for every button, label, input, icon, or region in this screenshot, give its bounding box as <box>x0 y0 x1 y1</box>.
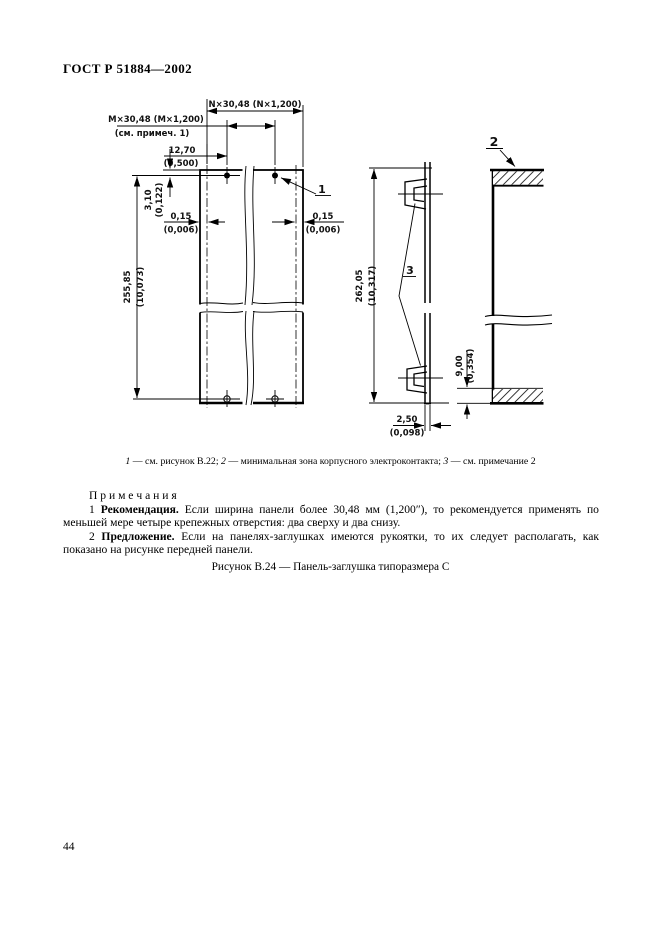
front-view-panel-outline <box>198 165 305 408</box>
dim-310-inch: (0,122) <box>155 183 165 218</box>
page-number: 44 <box>63 841 75 853</box>
dimension-9-00: 9,00 (0,354) <box>455 349 476 419</box>
dim-900-value: 9,00 <box>455 355 465 376</box>
callout-2: 2 <box>486 134 515 167</box>
dimension-0-15-right: 0,15 (0,006) <box>272 212 344 236</box>
callout-3-label: 3 <box>406 264 414 277</box>
side-view <box>398 162 443 404</box>
contact-zone-top <box>493 171 543 184</box>
figure-key: 1 — см. рисунок В.22; 2 — минимальная зо… <box>0 456 661 467</box>
dimension-255-85: 255,85 (10,073) <box>123 177 146 399</box>
technical-drawing: N×30,48 (N×1,200) M×30,48 (M×1,200) (см.… <box>0 0 661 470</box>
dim-015r-value: 0,15 <box>313 212 334 222</box>
dim-26205-value: 262,05 <box>355 270 365 303</box>
dim-26205-inch: (10,317) <box>368 266 378 307</box>
dim-m-note: (см. примеч. 1) <box>115 129 190 139</box>
dim-25585-value: 255,85 <box>123 271 133 304</box>
note-2-term: Предложение. <box>101 530 174 543</box>
dimension-0-15-left: 0,15 (0,006) <box>164 212 225 236</box>
dimension-n-module: N×30,48 (N×1,200) <box>207 100 303 111</box>
dim-900-inch: (0,354) <box>466 349 476 384</box>
note-2: 2 Предложение. Если на панелях-заглушках… <box>63 530 599 557</box>
callout-2-label: 2 <box>490 134 499 149</box>
callout-1: 1 <box>281 178 331 196</box>
contact-zone-bottom <box>493 389 543 403</box>
dim-m-label: M×30,48 (M×1,200) <box>108 115 204 125</box>
key-item-2-num: 2 <box>221 456 226 467</box>
dim-n-label: N×30,48 (N×1,200) <box>209 100 302 110</box>
dimension-262-05: 262,05 (10,317) <box>355 168 449 403</box>
note-1-num: 1 <box>89 503 95 516</box>
note-1-term: Рекомендация. <box>101 503 179 516</box>
note-2-num: 2 <box>89 530 95 543</box>
front-view-extension-lines <box>132 99 303 399</box>
dim-1270-value: 12,70 <box>169 146 196 156</box>
dimension-2-50: 2,50 (0,098) <box>390 405 451 439</box>
callout-1-label: 1 <box>318 183 326 196</box>
dim-015r-inch: (0,006) <box>306 226 341 236</box>
notes-section: П р и м е ч а н и я 1 Рекомендация. Если… <box>63 489 599 557</box>
dimension-m-module: M×30,48 (M×1,200) (см. примеч. 1) <box>108 115 275 139</box>
dim-015l-value: 0,15 <box>171 212 192 222</box>
figure-title: Рисунок В.24 — Панель-заглушка типоразме… <box>0 561 661 573</box>
key-item-1-text: — см. рисунок В.22; <box>133 456 219 467</box>
note-1: 1 Рекомендация. Если ширина панели более… <box>63 503 599 530</box>
key-item-2-text: — минимальная зона корпусного электрокон… <box>228 456 441 467</box>
dim-25585-inch: (10,073) <box>136 267 146 308</box>
dim-015l-inch: (0,006) <box>164 226 199 236</box>
key-item-3-text: — см. примечание 2 <box>451 456 536 467</box>
dim-1270-inch: (0,500) <box>164 159 199 169</box>
notes-heading: П р и м е ч а н и я <box>63 489 599 503</box>
dim-310-value: 3,10 <box>144 189 154 210</box>
dimension-12-70: 12,70 (0,500) <box>164 146 227 169</box>
callout-3: 3 <box>399 204 421 366</box>
dim-250-inch: (0,098) <box>390 429 425 439</box>
key-item-3-num: 3 <box>443 456 448 467</box>
key-item-1-num: 1 <box>125 456 130 467</box>
dim-250-value: 2,50 <box>397 415 418 425</box>
